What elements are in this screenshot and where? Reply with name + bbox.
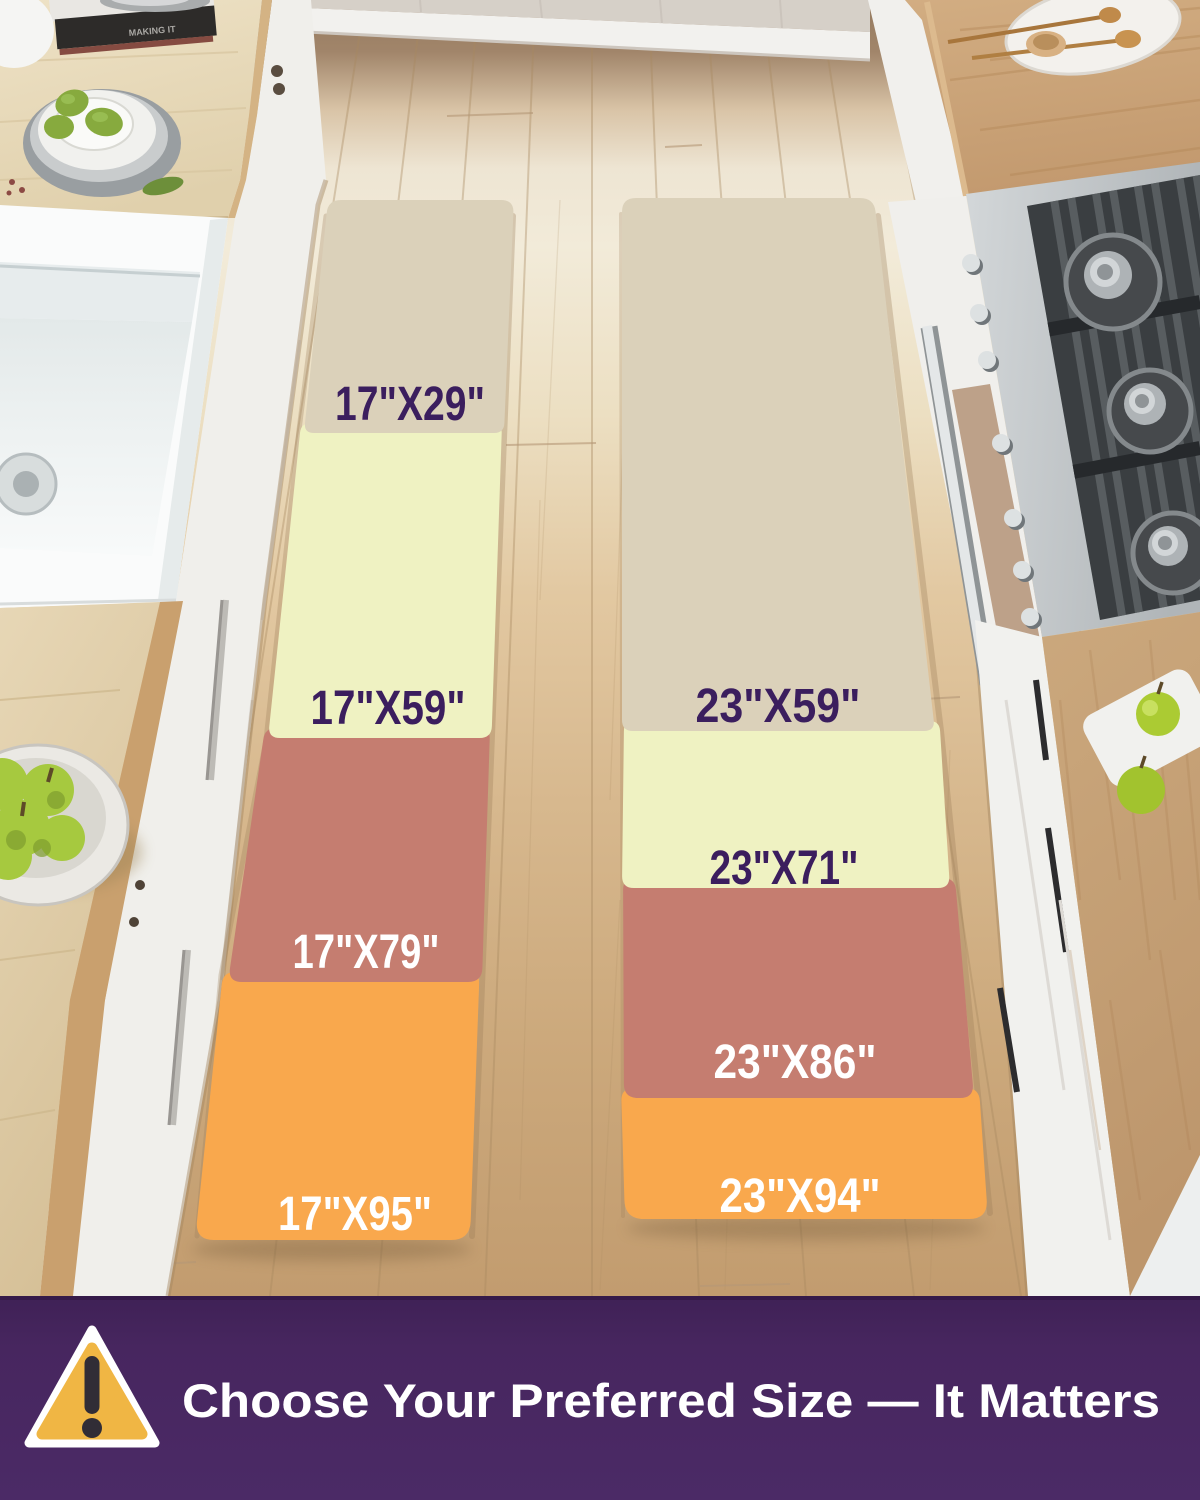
svg-text:17"X29": 17"X29" <box>335 378 485 431</box>
svg-text:23"X86": 23"X86" <box>714 1036 877 1089</box>
svg-text:23"X71": 23"X71" <box>710 842 859 895</box>
svg-text:Choose Your Preferred Size — I: Choose Your Preferred Size — It Matters <box>182 1374 1160 1427</box>
svg-text:23"X94": 23"X94" <box>720 1170 881 1223</box>
svg-text:17"X59": 17"X59" <box>311 682 466 735</box>
svg-text:17"X79": 17"X79" <box>293 926 440 979</box>
svg-text:17"X95": 17"X95" <box>278 1188 432 1241</box>
svg-text:23"X59": 23"X59" <box>696 680 861 733</box>
